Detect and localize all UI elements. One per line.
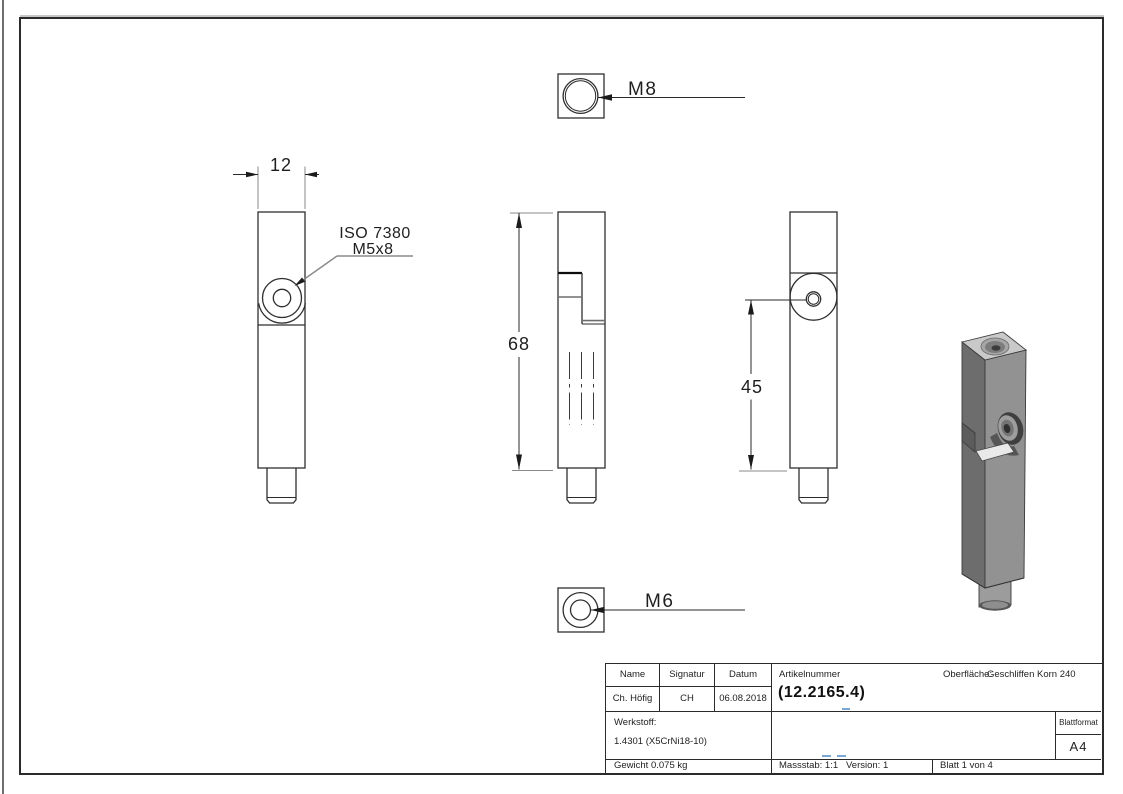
m6-thread-label: M6 [645,591,674,612]
right-view-body [790,212,837,468]
dim45-text: 45 [741,377,763,397]
tb-blatt: Blatt 1 von 4 [940,759,993,773]
tb-oberflaeche-label: Oberfläche: [943,669,992,680]
view-right: 45 [739,212,837,503]
left-view-screw-socket-circle [273,289,290,306]
right-view-hole-inner [808,294,819,305]
view-top: M8 [558,74,745,118]
bottom-view-thread-circle [571,600,591,620]
left-view-body [258,212,305,468]
placeholder-dash [837,755,846,757]
tb-artikelnummer-label: Artikelnummer [779,669,840,680]
dim12-text: 12 [270,155,292,175]
dim68-text: 68 [508,334,530,354]
top-view-thread-minor-circle [565,81,595,111]
placeholder-dash [822,755,831,757]
dim68-arrow-up [516,213,522,228]
left-view-screw-head-circle [263,279,302,318]
screw-spec-arrow [295,278,306,287]
tb-version: Version: 1 [846,759,888,773]
right-view-boss-circle [790,273,837,320]
tb-werkstoff-value: 1.4301 (X5CrNi18-10) [614,736,707,747]
view-3d-isometric [962,332,1027,611]
solid-stud-bottom-face [982,601,1008,609]
tb-oberflaeche-value: Geschliffen Korn 240 [987,669,1076,680]
tb-value-name: Ch. Höfig [606,686,659,711]
front-view-body [558,212,605,468]
dim45-arrow-up [748,300,754,315]
solid-left-face [962,342,985,588]
dim12-arrow-left [246,172,258,178]
dim12-arrow-right [305,172,317,178]
tb-artikelnummer-value: (12.2165.4) [778,684,865,702]
dim68-arrow-down [516,455,522,470]
dim45-arrow-down [748,455,754,470]
tb-massstab: Massstab: 1:1 [779,759,838,773]
tb-header-signatur: Signatur [660,664,714,686]
tb-header-name: Name [606,664,659,686]
tb-blattformat-value: A4 [1056,734,1101,759]
m8-leader-arrow [598,94,612,100]
tb-werkstoff-label: Werkstoff: [614,717,656,728]
title-block: Name Signatur Datum Ch. Höfig CH 06.08.2… [605,663,1103,775]
view-front: 68 [508,212,605,503]
placeholder-dash [842,708,850,710]
tb-header-datum: Datum [715,664,771,686]
tb-value-datum: 06.08.2018 [715,686,771,711]
view-bottom: M6 [558,588,745,632]
screw-spec-line1: ISO 7380 [339,225,411,242]
top-view-thread-major-circle [563,79,598,114]
solid-countersink-bore [992,345,1001,350]
tb-blattformat-label: Blattformat [1056,711,1101,734]
tb-value-signatur: CH [660,686,714,711]
m8-thread-label: M8 [628,79,657,100]
view-left: 12 ISO 7380 M5x8 [233,155,413,503]
tb-gewicht: Gewicht 0.075 kg [614,759,687,773]
solid-right-face [985,350,1026,588]
drawing-page: M8 12 ISO 7380 M5x8 [0,0,1123,794]
